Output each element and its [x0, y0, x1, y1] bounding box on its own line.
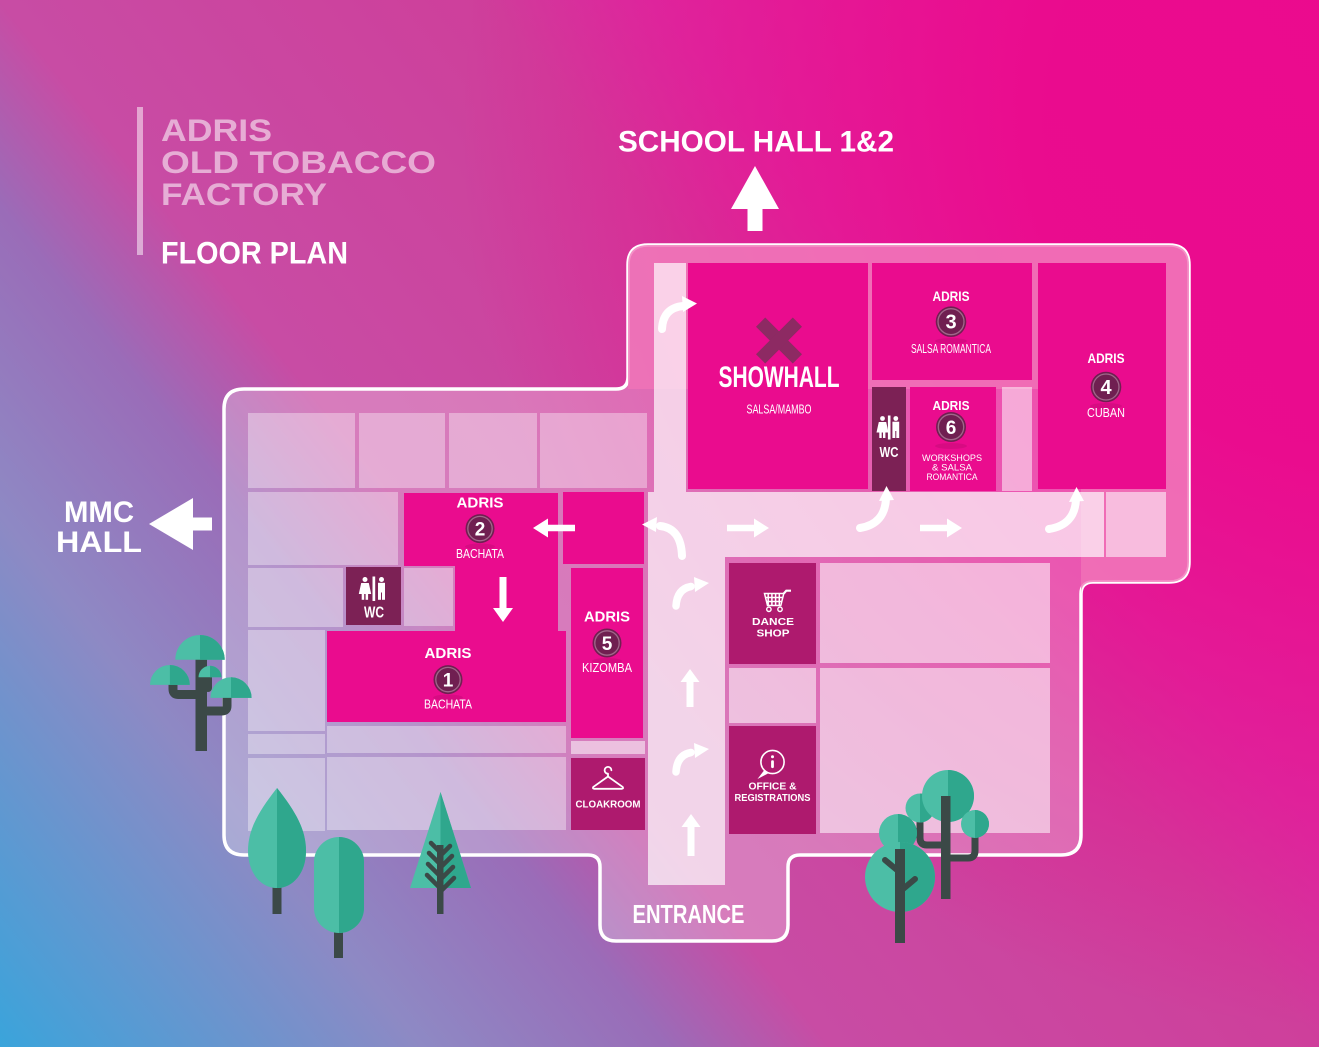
- svg-text:BACHATA: BACHATA: [424, 698, 473, 712]
- svg-text:ADRIS: ADRIS: [457, 495, 504, 512]
- svg-text:6: 6: [946, 418, 957, 439]
- svg-text:SHOWHALL: SHOWHALL: [719, 361, 840, 394]
- svg-text:REGISTRATIONS: REGISTRATIONS: [735, 792, 811, 804]
- svg-text:ENTRANCE: ENTRANCE: [633, 899, 745, 929]
- svg-text:1: 1: [443, 670, 454, 691]
- svg-text:CUBAN: CUBAN: [1087, 406, 1125, 420]
- svg-text:5: 5: [602, 634, 613, 655]
- svg-text:OFFICE &: OFFICE &: [749, 781, 797, 793]
- svg-text:HALL: HALL: [56, 526, 142, 559]
- svg-text:DANCE: DANCE: [752, 616, 794, 628]
- svg-text:SALSA/MAMBO: SALSA/MAMBO: [747, 403, 812, 417]
- svg-text:OLD TOBACCO: OLD TOBACCO: [161, 144, 436, 180]
- svg-text:CLOAKROOM: CLOAKROOM: [576, 799, 641, 811]
- svg-text:WC: WC: [880, 445, 899, 461]
- svg-text:2: 2: [475, 519, 486, 540]
- svg-text:ADRIS: ADRIS: [933, 398, 970, 413]
- svg-text:SHOP: SHOP: [757, 628, 790, 640]
- svg-text:FACTORY: FACTORY: [161, 176, 327, 212]
- svg-text:ROMANTICA: ROMANTICA: [927, 472, 979, 483]
- svg-text:SCHOOL HALL 1&2: SCHOOL HALL 1&2: [618, 126, 894, 159]
- svg-text:3: 3: [945, 312, 956, 334]
- svg-text:ADRIS: ADRIS: [933, 288, 970, 304]
- svg-text:FLOOR PLAN: FLOOR PLAN: [161, 235, 348, 271]
- svg-text:ADRIS: ADRIS: [584, 609, 630, 626]
- svg-text:MMC: MMC: [64, 496, 134, 529]
- svg-text:SALSA ROMANTICA: SALSA ROMANTICA: [911, 342, 991, 356]
- svg-text:ADRIS: ADRIS: [1088, 350, 1125, 366]
- svg-text:4: 4: [1100, 377, 1112, 399]
- svg-text:WC: WC: [364, 605, 384, 622]
- svg-text:BACHATA: BACHATA: [456, 547, 505, 561]
- svg-text:ADRIS: ADRIS: [425, 645, 472, 662]
- svg-text:KIZOMBA: KIZOMBA: [582, 661, 633, 675]
- svg-text:ADRIS: ADRIS: [161, 112, 272, 148]
